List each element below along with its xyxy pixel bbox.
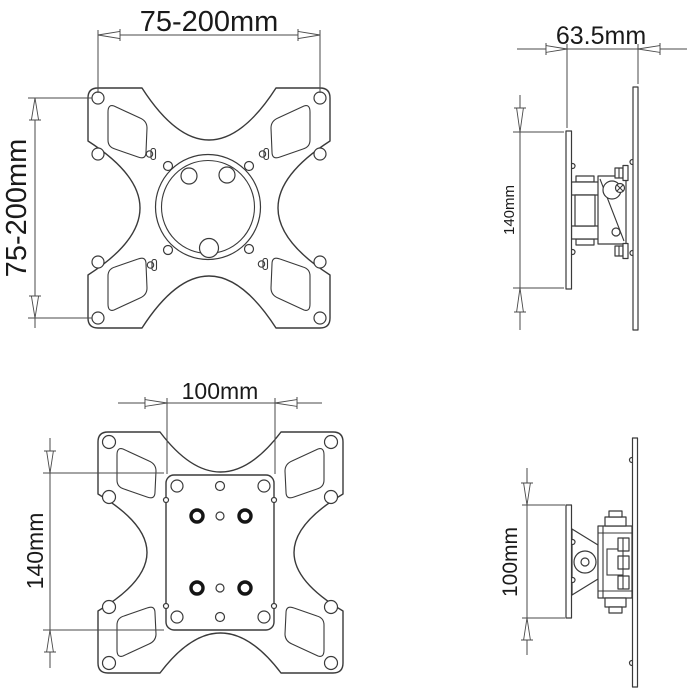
dimension-wallplate-height: 100mm <box>499 468 565 655</box>
dimension-wallplate-height: 140mm <box>501 95 564 330</box>
dimension-height: 75-200mm <box>1 98 92 328</box>
side-view-top: 63.5mm 140mm <box>501 22 687 330</box>
side-view-bottom: 100mm <box>499 438 638 687</box>
dim-label-front-width: 75-200mm <box>140 6 279 38</box>
center-swivel-disc <box>156 155 261 260</box>
vesa-plate-front-view: 75-200mm 75-200mm <box>1 6 330 328</box>
dim-label-side-height: 140mm <box>501 185 518 235</box>
center-mounting-plate <box>164 475 277 630</box>
bracket-drawing-svg: 75-200mm 75-200mm <box>0 0 700 700</box>
tilt-arm-assembly <box>572 166 629 259</box>
vesa-plate-rear-view: 100mm 140mm <box>22 378 343 673</box>
dim-label-bottom-height: 100mm <box>499 527 522 597</box>
dim-label-front-height: 75-200mm <box>1 139 33 278</box>
wall-plate-side <box>566 131 575 289</box>
dim-label-rear-height: 140mm <box>22 513 48 590</box>
dimension-depth: 63.5mm <box>517 22 687 128</box>
dimension-width: 75-200mm <box>98 6 320 93</box>
dim-label-rear-width: 100mm <box>182 378 259 404</box>
tv-plate-side <box>630 87 638 330</box>
pivot-bracket <box>572 511 632 613</box>
dim-label-depth: 63.5mm <box>556 22 646 50</box>
drawing-sheet: 75-200mm 75-200mm <box>0 0 700 700</box>
